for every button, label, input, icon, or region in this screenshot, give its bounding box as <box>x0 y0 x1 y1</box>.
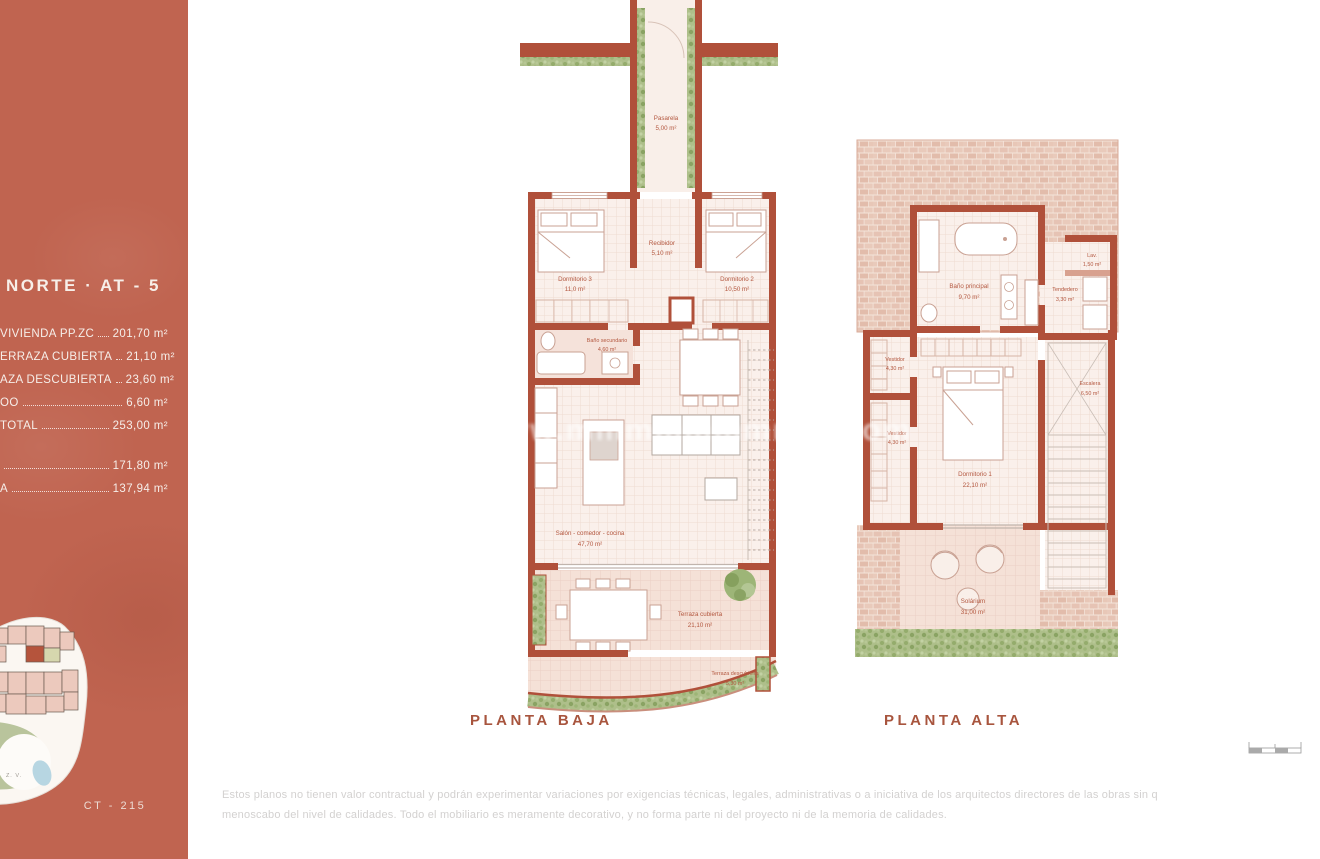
stair-floor <box>1045 337 1108 590</box>
room-name: Recibidor <box>649 240 675 247</box>
leader-dots <box>116 382 122 383</box>
pasarela-walkway: Pasarela 5,00 m² <box>520 0 778 192</box>
solarium-floor <box>900 525 1040 645</box>
installation-shaft <box>670 298 693 323</box>
caption-planta-baja: PLANTA BAJA <box>470 712 613 729</box>
area-value: 137,94 m² <box>113 483 168 495</box>
plan-code: CT - 215 <box>40 800 190 812</box>
area-label: A <box>0 483 8 495</box>
terrace-dining-table <box>556 579 661 651</box>
floorplan-planta-alta: Baño principal 9,70 m² Lav. 1,50 m² Tend… <box>855 135 1125 660</box>
leader-dots <box>116 359 122 360</box>
kitchen-counter <box>535 388 557 488</box>
dining-table <box>680 329 740 406</box>
room-name: Vestidor <box>887 431 907 437</box>
room-name: Dormitorio 1 <box>958 471 992 478</box>
solarium-hedge <box>855 629 1118 657</box>
room-name: Baño secundario <box>587 338 627 344</box>
room-name: Escalera <box>1080 381 1101 387</box>
area-value: 23,60 m² <box>126 374 175 386</box>
area-label: AZA DESCUBIERTA <box>0 374 112 386</box>
area-label: TOTAL <box>0 420 38 432</box>
area-row: OO 6,60 m² <box>0 397 168 409</box>
site-zv-label: Z. V. <box>6 773 22 779</box>
area-row: TOTAL 253,00 m² <box>0 420 168 432</box>
graphic-scale <box>1245 736 1311 762</box>
room-area: 5,10 m² <box>652 250 673 257</box>
area-label: ERRAZA CUBIERTA <box>0 351 112 363</box>
sidebar: NORTE · AT - 5 VIVIENDA PP.ZC 201,70 m² … <box>0 0 188 859</box>
terraza-cubierta <box>528 569 776 657</box>
room-name: Terraza cubierta <box>678 611 723 618</box>
room-area: 22,10 m² <box>963 482 987 489</box>
room-area: 11,0 m² <box>565 286 586 293</box>
leader-dots <box>23 405 123 406</box>
room-area: 31,00 m² <box>961 609 985 616</box>
floorplan-planta-baja: Pasarela 5,00 m² <box>490 0 810 750</box>
room-name: Tendedero <box>1052 287 1077 293</box>
room-area: 9,70 m² <box>959 294 980 301</box>
room-area: 4,30 m² <box>886 366 904 372</box>
room-name: Baño principal <box>949 283 988 290</box>
unit-title: NORTE · AT - 5 <box>6 276 161 296</box>
room-area: 10,50 m² <box>725 286 749 293</box>
room-area: 6,50 m² <box>1081 391 1099 397</box>
room-area: 4,60 m² <box>598 347 616 353</box>
room-name: Terraza descubierta <box>711 671 758 677</box>
area-row: A 137,94 m² <box>0 483 168 495</box>
room-name: Dormitorio 2 <box>720 276 754 283</box>
room-name: Vestidor <box>885 357 905 363</box>
bedroom-windows <box>552 193 762 199</box>
solarium-brick-left <box>857 525 900 645</box>
room-area: 1,50 m² <box>1083 262 1101 268</box>
leader-dots <box>98 336 108 337</box>
area-value: 6,60 m² <box>126 397 168 409</box>
area-label: VIVIENDA PP.ZC <box>0 328 94 340</box>
disclaimer-line2: menoscabo del nivel de calidades. Todo e… <box>222 809 1320 821</box>
sofa <box>652 415 740 455</box>
room-name: Lav. <box>1087 253 1097 259</box>
room-area: 5,00 m² <box>656 125 677 132</box>
brochure-page: NORTE · AT - 5 VIVIENDA PP.ZC 201,70 m² … <box>0 0 1320 859</box>
room-area: 4,30 m² <box>888 440 906 446</box>
room-name: Salón - comedor - cocina <box>556 530 625 537</box>
area-value: 171,80 m² <box>113 460 168 472</box>
bed-dormitorio2 <box>706 210 766 272</box>
room-name: Solárium <box>961 598 985 605</box>
leader-dots <box>4 468 109 469</box>
room-area: 21,10 m² <box>688 622 712 629</box>
area-label: OO <box>0 397 19 409</box>
room-area: 47,70 m² <box>578 541 602 548</box>
site-map-thumbnail: Z. V. <box>0 610 110 815</box>
disclaimer-line1: Estos planos no tienen valor contractual… <box>222 789 1320 801</box>
kitchen-island <box>583 420 624 505</box>
caption-planta-alta: PLANTA ALTA <box>884 712 1023 729</box>
leader-dots <box>42 428 109 429</box>
room-area: 3,30 m² <box>1056 297 1074 303</box>
area-row: ERRAZA CUBIERTA 21,10 m² <box>0 351 168 363</box>
room-name: Dormitorio 3 <box>558 276 592 283</box>
leader-dots <box>12 491 109 492</box>
room-area: 5,30 m² <box>726 681 744 687</box>
area-table: VIVIENDA PP.ZC 201,70 m² ERRAZA CUBIERTA… <box>0 328 168 506</box>
coffee-table <box>705 478 737 500</box>
area-row: VIVIENDA PP.ZC 201,70 m² <box>0 328 168 340</box>
area-value: 201,70 m² <box>113 328 168 340</box>
terrace-glass-door <box>558 565 738 569</box>
area-row: 171,80 m² <box>0 460 168 472</box>
area-value: 21,10 m² <box>126 351 175 363</box>
area-row: AZA DESCUBIERTA 23,60 m² <box>0 374 168 386</box>
bed-dormitorio3 <box>538 210 604 272</box>
terrace-tree <box>724 569 756 601</box>
room-name: Pasarela <box>654 115 679 122</box>
bed-master <box>933 367 1013 460</box>
area-value: 253,00 m² <box>113 420 168 432</box>
